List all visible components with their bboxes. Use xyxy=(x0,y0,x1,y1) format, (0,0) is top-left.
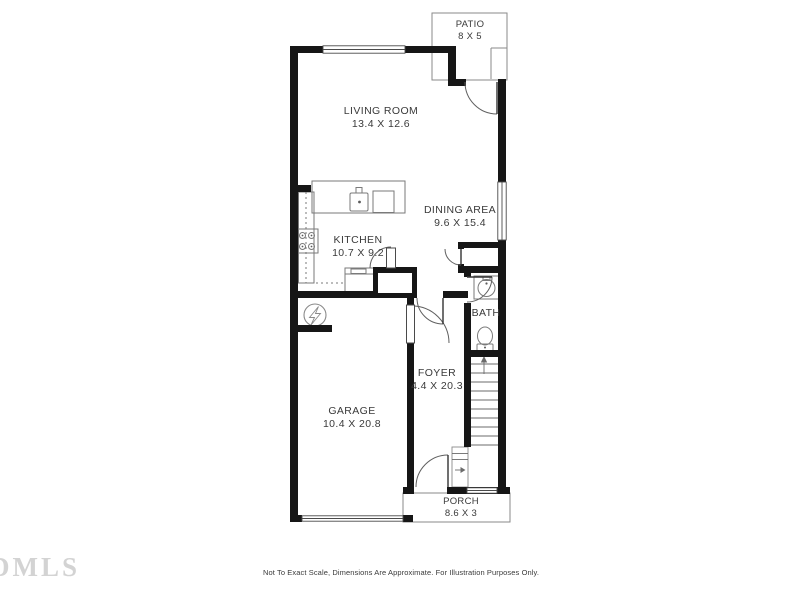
patio-door-arc xyxy=(465,82,497,114)
foyer-wall-left-a xyxy=(407,291,414,305)
room-dims: 10.7 X 9.2 xyxy=(332,247,384,260)
room-dims: 8.6 X 3 xyxy=(443,508,479,520)
electrical-panel-icon xyxy=(304,304,326,326)
burner-dot xyxy=(311,235,313,237)
burner-dot xyxy=(311,246,313,248)
closet-door-arc xyxy=(445,249,461,265)
garage-wall-bottom-b xyxy=(403,515,413,522)
room-name: FOYER xyxy=(411,367,463,380)
room-label-dining-area: DINING AREA 9.6 X 15.4 xyxy=(424,204,496,230)
lightning-bolt-icon xyxy=(310,307,321,326)
wall-patio-step-h xyxy=(448,79,466,86)
room-dims: 8 X 5 xyxy=(456,31,485,43)
room-name: KITCHEN xyxy=(332,234,384,247)
wall-kitchen-stub xyxy=(290,185,311,192)
entry-wall-bottom-a xyxy=(403,487,413,494)
floor-plan-drawing xyxy=(0,0,800,600)
wall-right-upper xyxy=(498,79,506,182)
room-dims: 13.4 X 12.6 xyxy=(344,118,418,131)
closet-wall-top xyxy=(458,242,506,248)
closet-wall-left-a xyxy=(458,242,464,249)
room-dims: 10.4 X 20.8 xyxy=(323,418,381,431)
wall-hall-stub xyxy=(443,291,468,298)
room-dims: 4.4 X 20.3 xyxy=(411,380,463,393)
electrical-panel xyxy=(304,304,326,326)
room-name: PATIO xyxy=(456,19,485,31)
room-name: GARAGE xyxy=(323,405,381,418)
bath-wall-bottom xyxy=(464,350,506,357)
room-label-patio: PATIO 8 X 5 xyxy=(456,19,485,42)
kitchen-sink-drain xyxy=(358,201,361,204)
bath-wall-left-b xyxy=(464,303,471,447)
room-label-living-room: LIVING ROOM 13.4 X 12.6 xyxy=(344,105,418,131)
counter-sink-detail xyxy=(351,269,366,274)
room-label-garage: GARAGE 10.4 X 20.8 xyxy=(323,405,381,431)
bath-basin xyxy=(478,280,495,297)
bath-drain-dot xyxy=(485,282,487,284)
kitchen-counter-top xyxy=(312,181,405,213)
front-door-arc xyxy=(416,455,448,487)
room-name: DINING AREA xyxy=(424,204,496,217)
toilet-dot xyxy=(484,347,486,349)
pantry-closet-interior xyxy=(378,273,412,293)
pantry-door-leaf xyxy=(387,248,396,268)
room-label-kitchen: KITCHEN 10.7 X 9.2 xyxy=(332,234,384,260)
landing-arrow-head xyxy=(461,467,466,473)
foyer-wall-left-b xyxy=(407,343,414,494)
wall-left xyxy=(290,46,298,522)
stair-landing-outline xyxy=(452,447,468,487)
burner-dot xyxy=(302,246,304,248)
room-label-porch: PORCH 8.6 X 3 xyxy=(443,496,479,519)
floorplan-page: { "floor_plan": { "rooms": [ {"name": "P… xyxy=(0,0,800,600)
garage-entry-door-leaf xyxy=(407,305,415,343)
wall-kitchen-bottom xyxy=(290,291,375,298)
closet-wall-bottom xyxy=(458,266,506,273)
disclaimer-text: Not To Exact Scale, Dimensions Are Appro… xyxy=(263,568,539,577)
refrigerator-icon xyxy=(373,191,394,213)
room-label-foyer: FOYER 4.4 X 20.3 xyxy=(411,367,463,393)
garage-wall-bottom-a xyxy=(290,515,302,522)
kitchen-faucet-icon xyxy=(356,188,362,194)
wall-right-lower xyxy=(498,240,506,493)
room-name: LIVING ROOM xyxy=(344,105,418,118)
toilet-bowl-icon xyxy=(478,327,493,345)
mls-watermark: DMLS xyxy=(0,552,80,583)
utility-wall-stub xyxy=(298,325,332,332)
room-label-bath: BATH xyxy=(472,307,501,320)
range-cooktop-icon xyxy=(296,229,318,253)
room-name: BATH xyxy=(472,307,501,320)
burner-dot xyxy=(302,235,304,237)
room-dims: 9.6 X 15.4 xyxy=(424,217,496,230)
room-name: PORCH xyxy=(443,496,479,508)
